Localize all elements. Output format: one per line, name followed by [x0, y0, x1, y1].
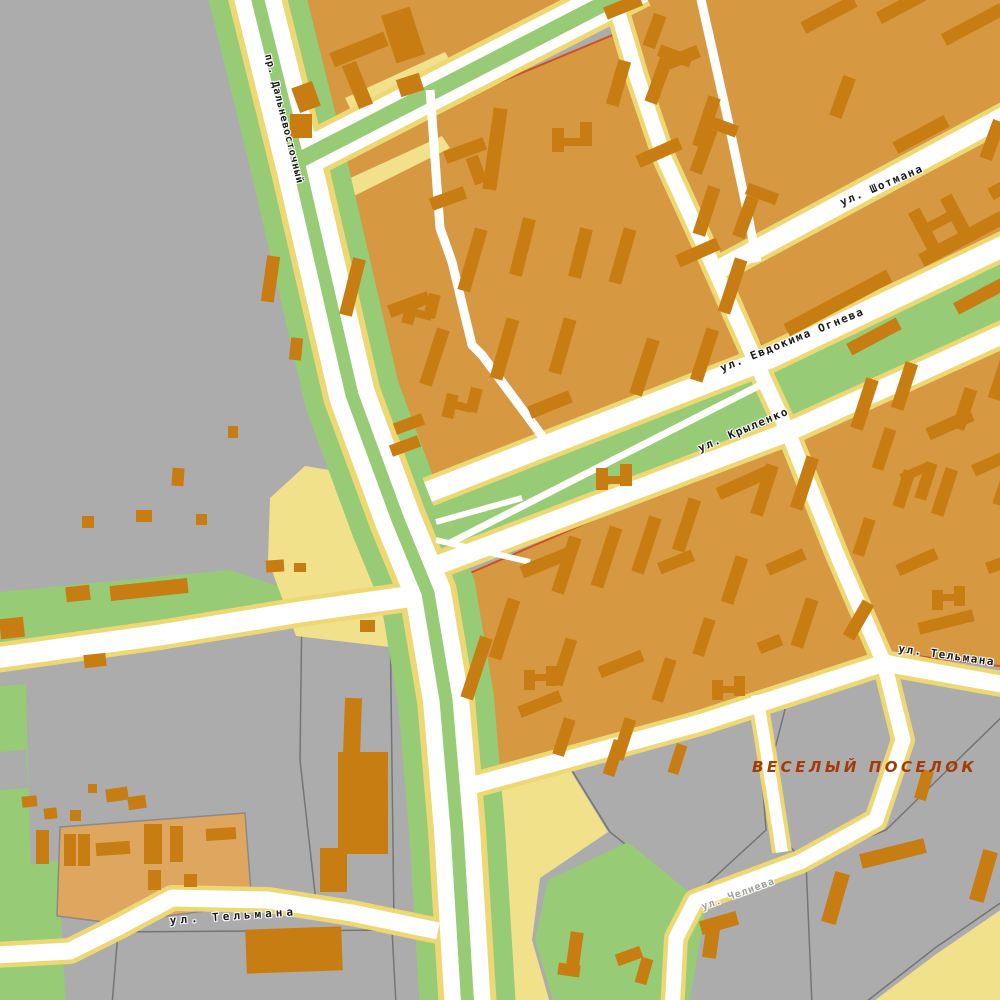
building: [528, 674, 548, 681]
building: [206, 827, 237, 841]
building: [82, 516, 94, 528]
district-label-vesely-poselok: ВЕСЕЛЫЙ ПОСЕЛОК: [752, 757, 977, 776]
building: [170, 826, 183, 862]
building: [184, 874, 197, 887]
building: [556, 138, 584, 146]
map-canvas[interactable]: пр. Дальневосточный ул. Шотмана ул. Евдо…: [0, 0, 1000, 1000]
building: [65, 585, 90, 602]
building: [78, 834, 90, 866]
building: [64, 834, 76, 866]
building: [171, 468, 184, 487]
building: [88, 784, 97, 793]
building: [96, 841, 131, 856]
building: [320, 848, 347, 892]
building: [266, 559, 285, 572]
map-viewport[interactable]: пр. Дальневосточный ул. Шотмана ул. Евдо…: [0, 0, 1000, 1000]
building: [245, 926, 342, 973]
building: [294, 563, 306, 572]
building: [144, 824, 162, 864]
building: [127, 795, 147, 810]
building: [936, 594, 956, 601]
gray-pocket: [0, 750, 28, 790]
building: [343, 698, 362, 757]
building: [36, 830, 49, 864]
building: [83, 653, 106, 668]
building: [289, 337, 303, 360]
building: [70, 810, 81, 821]
building: [136, 510, 152, 522]
building: [360, 620, 375, 632]
building: [228, 426, 238, 438]
building: [716, 686, 736, 693]
building: [338, 752, 388, 854]
building: [196, 514, 207, 525]
building: [43, 807, 57, 819]
building: [21, 795, 37, 808]
building: [600, 476, 622, 484]
building: [0, 617, 25, 639]
building: [148, 870, 161, 890]
